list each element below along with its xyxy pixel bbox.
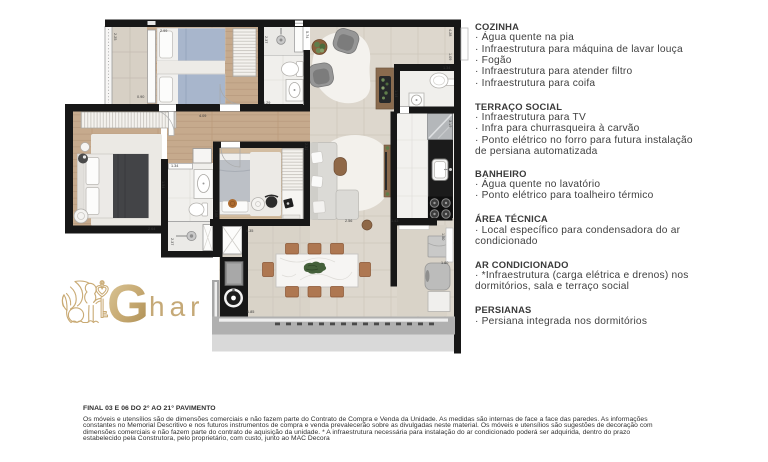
svg-text:1.09: 1.09 [448, 53, 452, 60]
svg-text:4.28: 4.28 [448, 29, 452, 36]
svg-text:6.85: 6.85 [247, 310, 254, 314]
svg-text:5.74: 5.74 [305, 31, 309, 38]
svg-text:1.34: 1.34 [171, 164, 178, 168]
svg-text:3.19: 3.19 [448, 120, 452, 127]
svg-text:1.80: 1.80 [441, 261, 448, 265]
svg-text:4.35: 4.35 [246, 229, 253, 233]
svg-text:0.90: 0.90 [137, 95, 144, 99]
svg-text:G: G [107, 274, 149, 334]
svg-text:1.43: 1.43 [391, 219, 398, 223]
svg-text:2.99: 2.99 [160, 29, 167, 33]
svg-text:1.14: 1.14 [394, 90, 398, 97]
svg-text:1.50: 1.50 [441, 233, 445, 240]
svg-text:2.21: 2.21 [304, 143, 308, 150]
svg-text:1.34: 1.34 [443, 66, 450, 70]
svg-text:2.64: 2.64 [148, 227, 155, 231]
svg-text:2.37: 2.37 [170, 238, 174, 245]
svg-text:2.37: 2.37 [264, 36, 268, 43]
svg-text:1.54: 1.54 [161, 181, 165, 188]
svg-text:1.29: 1.29 [263, 101, 270, 105]
svg-text:2.56: 2.56 [345, 219, 352, 223]
svg-text:2.06: 2.06 [214, 210, 218, 217]
svg-text:4.09: 4.09 [199, 114, 206, 118]
svg-text:har: har [149, 291, 204, 322]
svg-text:2.25: 2.25 [113, 33, 117, 40]
